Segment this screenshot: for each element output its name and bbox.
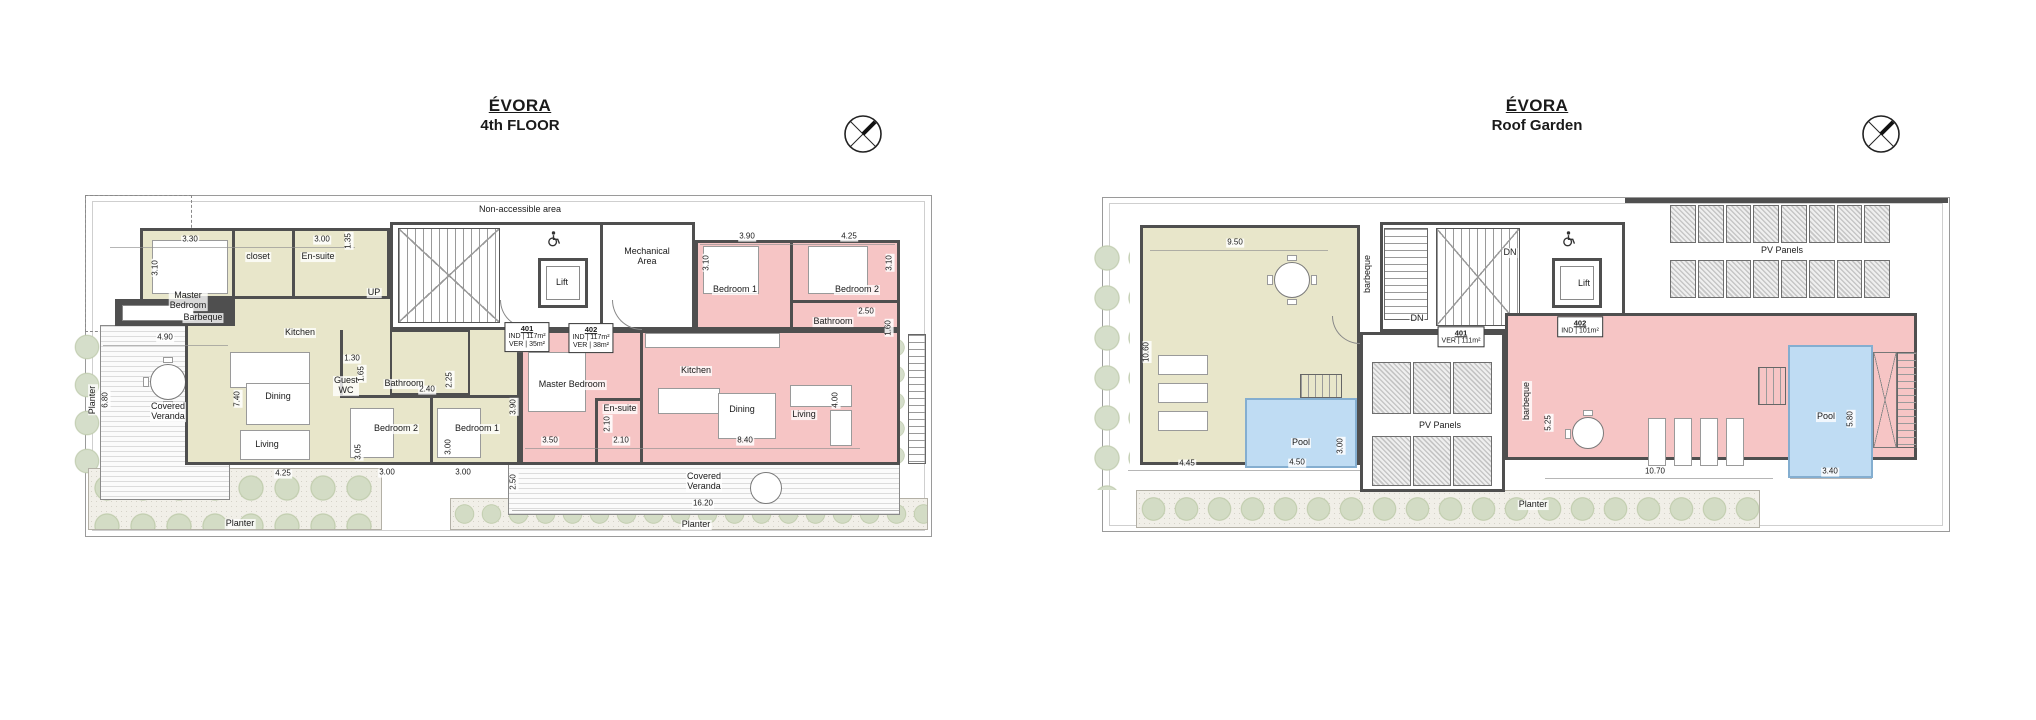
room-label: Bedroom 2 [373,424,419,434]
dimension-label: 5.25 [1545,414,1554,432]
room-label: PV Panels [1760,246,1804,256]
room-label: Pool [1816,412,1836,422]
dimension-label: 3.10 [886,254,895,272]
room-label: barbeque [1522,381,1532,421]
unit-area-line: VER | 38m² [572,343,609,351]
dimension-label: 3.90 [738,233,756,242]
dimension-label: 6.80 [102,391,111,409]
dimension-label: 4.25 [274,470,292,479]
room-label: Barbeque [182,313,223,323]
unit-number: 402 [1561,318,1599,327]
room-label: Dining [264,392,292,402]
dimension-label: 10.70 [1644,468,1666,477]
dimension-label: 8.40 [736,437,754,446]
room-label: Bathroom [812,317,853,327]
room-label: Living [254,440,280,450]
room-label: Planter [225,519,256,529]
dimension-label: 4.25 [840,233,858,242]
dimension-label: 2.50 [857,308,875,317]
dimension-label: 3.10 [152,259,161,277]
room-label: DN [1410,314,1425,324]
room-label: Covered Veranda [686,472,722,492]
dimension-label: 3.05 [355,443,364,461]
unit-tag: 401VER | 111m² [1438,326,1485,347]
unit-area-line: IND | 101m² [1561,327,1599,335]
dimension-label: 3.00 [378,469,396,478]
label-layer: Non-accessible areaMaster BedroomclosetE… [0,0,2036,720]
unit-area-line: VER | 35m² [508,342,545,350]
unit-number: 402 [572,325,609,334]
dimension-label: 3.40 [1821,468,1839,477]
unit-area-line: IND | 117m² [508,333,545,341]
dimension-label: 1.30 [343,355,361,364]
dimension-label: 4.45 [1178,460,1196,469]
dimension-label: 3.30 [181,236,199,245]
dimension-label: 3.00 [454,469,472,478]
unit-tag: 402IND | 117m²VER | 38m² [568,323,613,353]
unit-number: 401 [1442,328,1481,337]
dimension-label: 3.00 [313,236,331,245]
room-label: Master Bedroom [169,291,208,311]
room-label: Bedroom 1 [712,285,758,295]
dimension-label: 4.50 [1288,459,1306,468]
room-label: Guest WC [333,376,359,396]
room-label: Master Bedroom [538,380,607,390]
dimension-label: 3.90 [510,398,519,416]
dimension-label: 16.20 [692,500,714,509]
dimension-label: 1.35 [345,232,354,250]
unit-number: 401 [508,324,545,333]
room-label: barbeque [1363,254,1373,294]
dimension-label: 2.10 [612,437,630,446]
room-label: Planter [681,520,712,530]
room-label: DN [1503,248,1518,258]
dimension-label: 4.00 [832,391,841,409]
room-label: Covered Veranda [150,402,186,422]
dimension-label: 7.40 [234,390,243,408]
dimension-label: 10.60 [1143,341,1152,363]
room-label: Pool [1291,438,1311,448]
room-label: Living [791,410,817,420]
dimension-label: 2.25 [446,371,455,389]
unit-area-line: IND | 117m² [572,334,609,342]
room-label: Planter [1518,500,1549,510]
dimension-label: 3.00 [1337,437,1346,455]
dimension-label: 9.50 [1226,239,1244,248]
room-label: Kitchen [680,366,712,376]
dimension-label: 5.80 [1847,410,1856,428]
room-label: Non-accessible area [478,205,562,215]
dimension-label: 1.65 [358,365,367,383]
room-label: Lift [555,278,569,288]
unit-area-line: VER | 111m² [1442,337,1481,345]
room-label: En-suite [602,404,637,414]
room-label: Lift [1577,279,1591,289]
dimension-label: 2.50 [510,473,519,491]
dimension-label: 2.10 [604,415,613,433]
dimension-label: 4.90 [156,334,174,343]
room-label: Dining [728,405,756,415]
dimension-label: 3.00 [445,438,454,456]
dimension-label: 2.40 [418,386,436,395]
dimension-label: 3.50 [541,437,559,446]
room-label: En-suite [300,252,335,262]
room-label: Planter [88,385,98,416]
room-label: UP [367,288,382,298]
dimension-label: 1.60 [885,319,894,337]
room-label: Kitchen [284,328,316,338]
room-label: Bedroom 1 [454,424,500,434]
floor-plan-sheet: ÉVORA 4th FLOOR ÉVORA Roof Garden [0,0,2036,720]
unit-tag: 402IND | 101m² [1557,316,1603,337]
unit-tag: 401IND | 117m²VER | 35m² [504,322,549,352]
dimension-label: 3.10 [703,254,712,272]
room-label: closet [245,252,271,262]
room-label: Bedroom 2 [834,285,880,295]
room-label: Mechanical Area [623,247,671,267]
room-label: PV Panels [1418,421,1462,431]
